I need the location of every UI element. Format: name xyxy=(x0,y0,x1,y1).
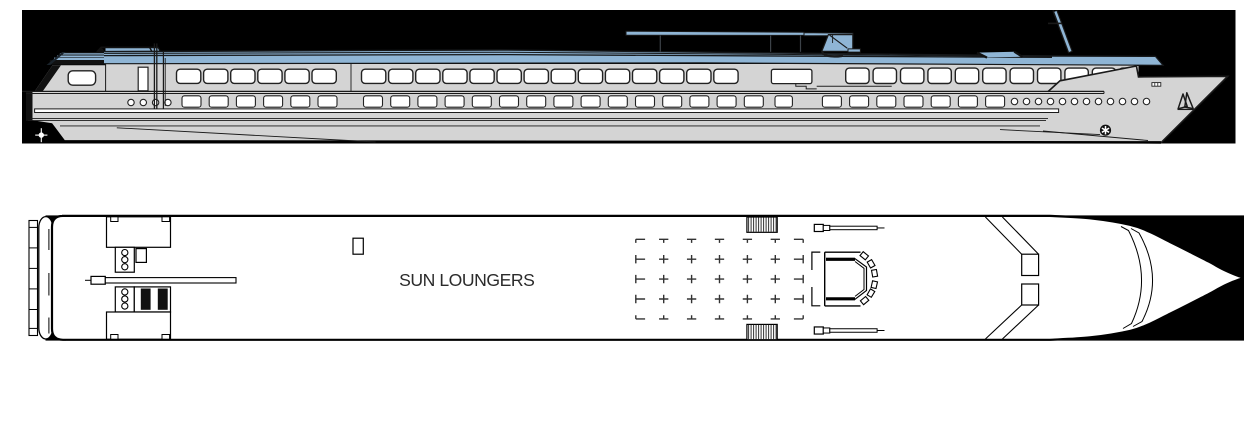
svg-text:SUN LOUNGERS: SUN LOUNGERS xyxy=(399,270,534,290)
